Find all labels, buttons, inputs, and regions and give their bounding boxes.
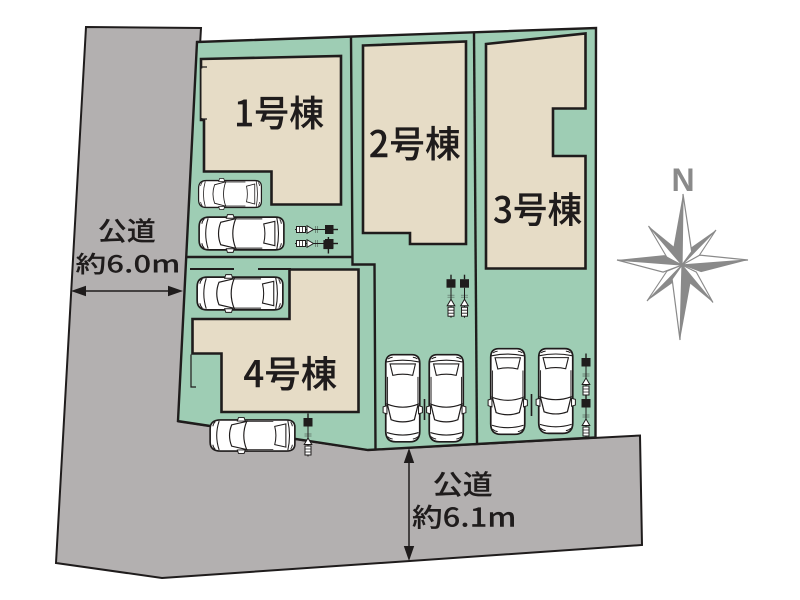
svg-text:N: N bbox=[671, 162, 694, 198]
